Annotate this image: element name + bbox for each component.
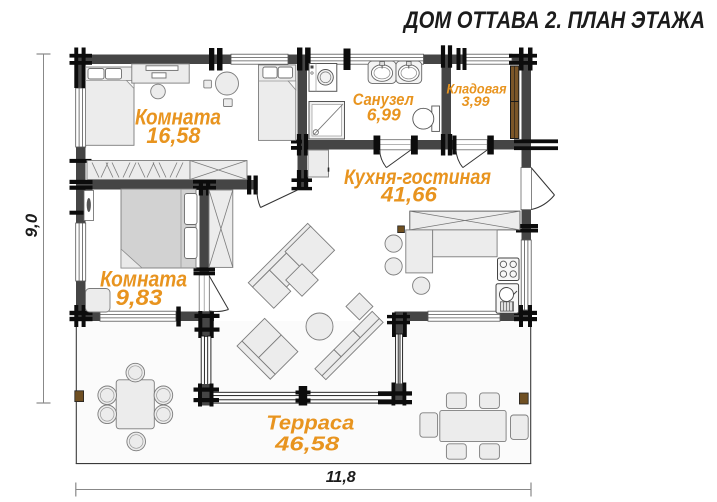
svg-text:16,58: 16,58: [146, 123, 201, 148]
svg-text:3,99: 3,99: [462, 93, 490, 109]
svg-text:ДОМ ОТТАВА 2. ПЛАН ЭТАЖА: ДОМ ОТТАВА 2. ПЛАН ЭТАЖА: [402, 7, 705, 34]
svg-text:11,8: 11,8: [326, 469, 356, 486]
svg-text:6,99: 6,99: [367, 105, 401, 125]
svg-text:41,66: 41,66: [380, 183, 438, 207]
svg-text:Терраса: Терраса: [266, 413, 354, 435]
svg-text:46,58: 46,58: [274, 433, 340, 456]
svg-text:9,0: 9,0: [22, 213, 41, 237]
svg-text:9,83: 9,83: [116, 285, 163, 310]
